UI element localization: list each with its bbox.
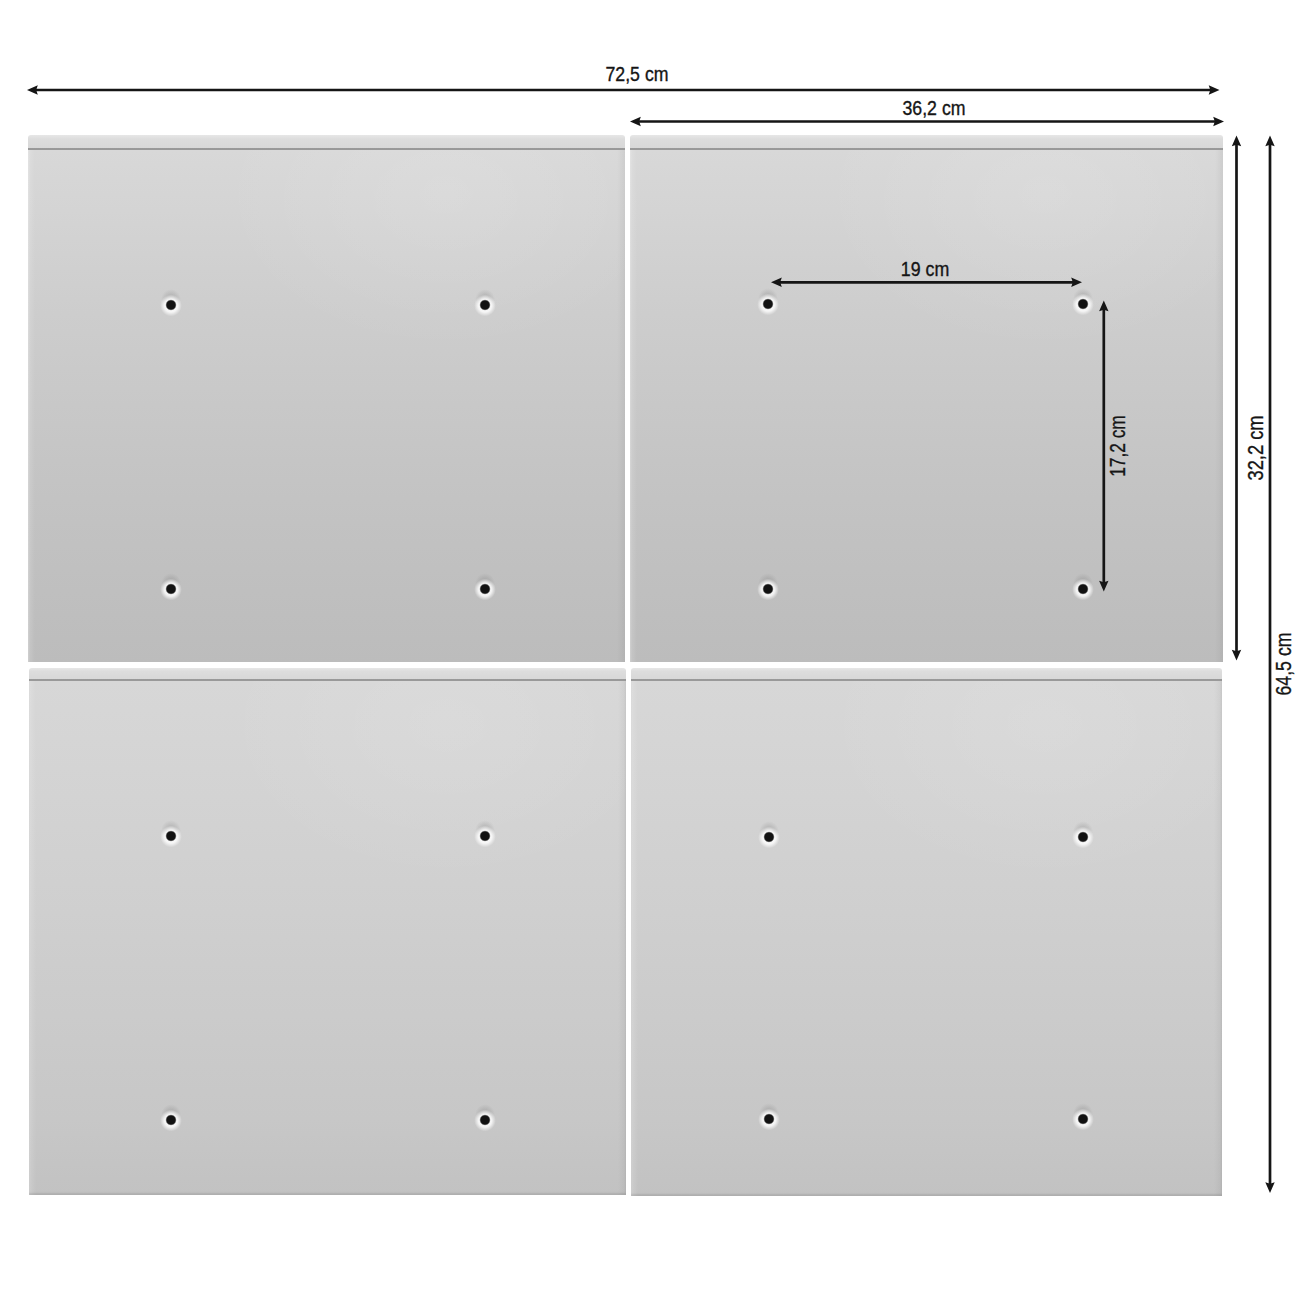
svg-text:19 cm: 19 cm [901, 258, 950, 280]
svg-text:17,2 cm: 17,2 cm [1105, 415, 1130, 477]
svg-text:36,2 cm: 36,2 cm [903, 97, 966, 119]
svg-text:32,2 cm: 32,2 cm [1243, 416, 1268, 481]
svg-text:64,5 cm: 64,5 cm [1271, 633, 1296, 696]
svg-text:72,5 cm: 72,5 cm [606, 63, 669, 85]
